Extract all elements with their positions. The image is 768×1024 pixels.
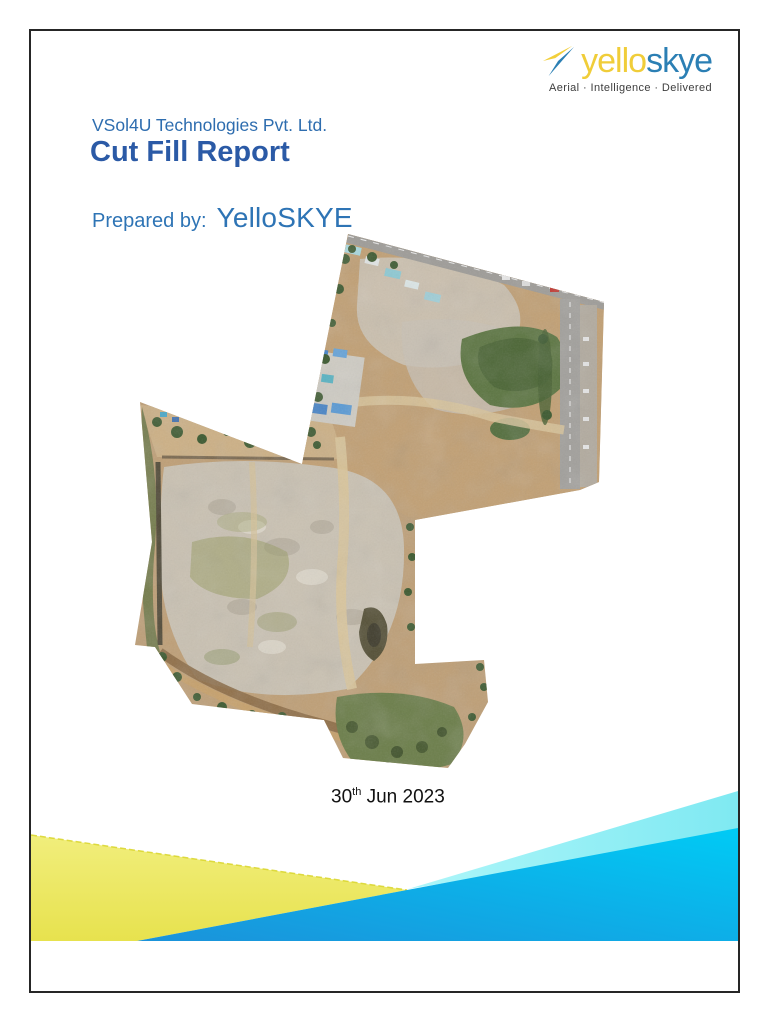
logo-text-skye: skye: [646, 42, 712, 80]
blue-band: [137, 828, 738, 941]
date-day: 30: [331, 786, 352, 807]
date-ordinal: th: [352, 786, 361, 798]
logo-tagline: Aerial · Intelligence · Delivered: [542, 82, 712, 94]
logo-text-yello: yello: [581, 42, 646, 80]
logo-wordmark: yelloskye: [581, 44, 712, 78]
report-title: Cut Fill Report: [90, 136, 290, 169]
date-caption: 30th Jun 2023: [331, 786, 445, 808]
logo: yelloskye Aerial · Intelligence · Delive…: [542, 44, 712, 94]
yellow-band-edge: [31, 835, 407, 890]
yellow-band: [31, 835, 407, 941]
date-rest: Jun 2023: [367, 786, 445, 807]
cyan-band: [408, 791, 738, 889]
orthomosaic-map: [102, 227, 647, 797]
company-name: VSol4U Technologies Pvt. Ltd.: [92, 115, 327, 136]
orthomosaic-svg: [102, 227, 647, 797]
paper-plane-icon: [542, 44, 576, 78]
report-cover-page: yelloskye Aerial · Intelligence · Delive…: [29, 29, 740, 993]
